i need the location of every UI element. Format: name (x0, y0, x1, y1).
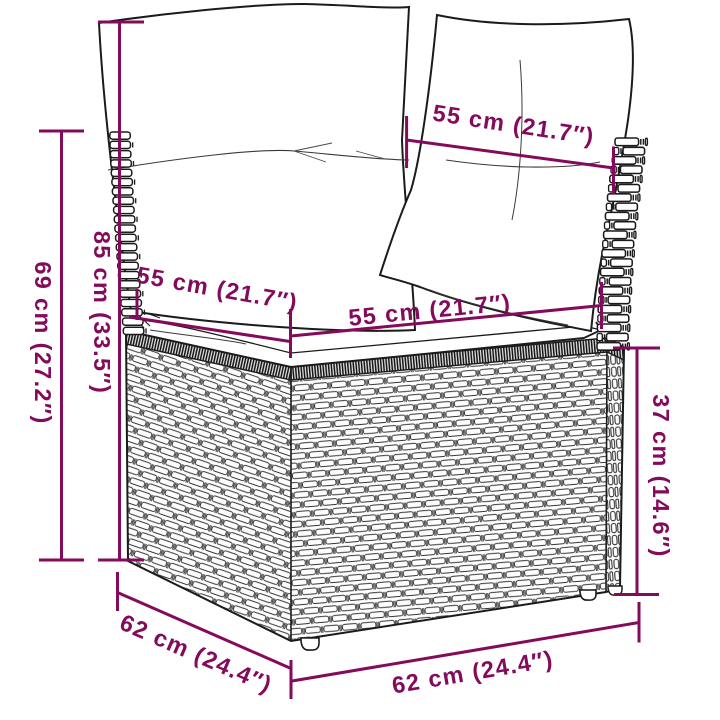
svg-text:37 cm (14.6″): 37 cm (14.6″) (648, 394, 674, 557)
svg-text:85 cm (33.5″): 85 cm (33.5″) (89, 231, 115, 394)
svg-text:69 cm (27.2″): 69 cm (27.2″) (30, 261, 56, 424)
